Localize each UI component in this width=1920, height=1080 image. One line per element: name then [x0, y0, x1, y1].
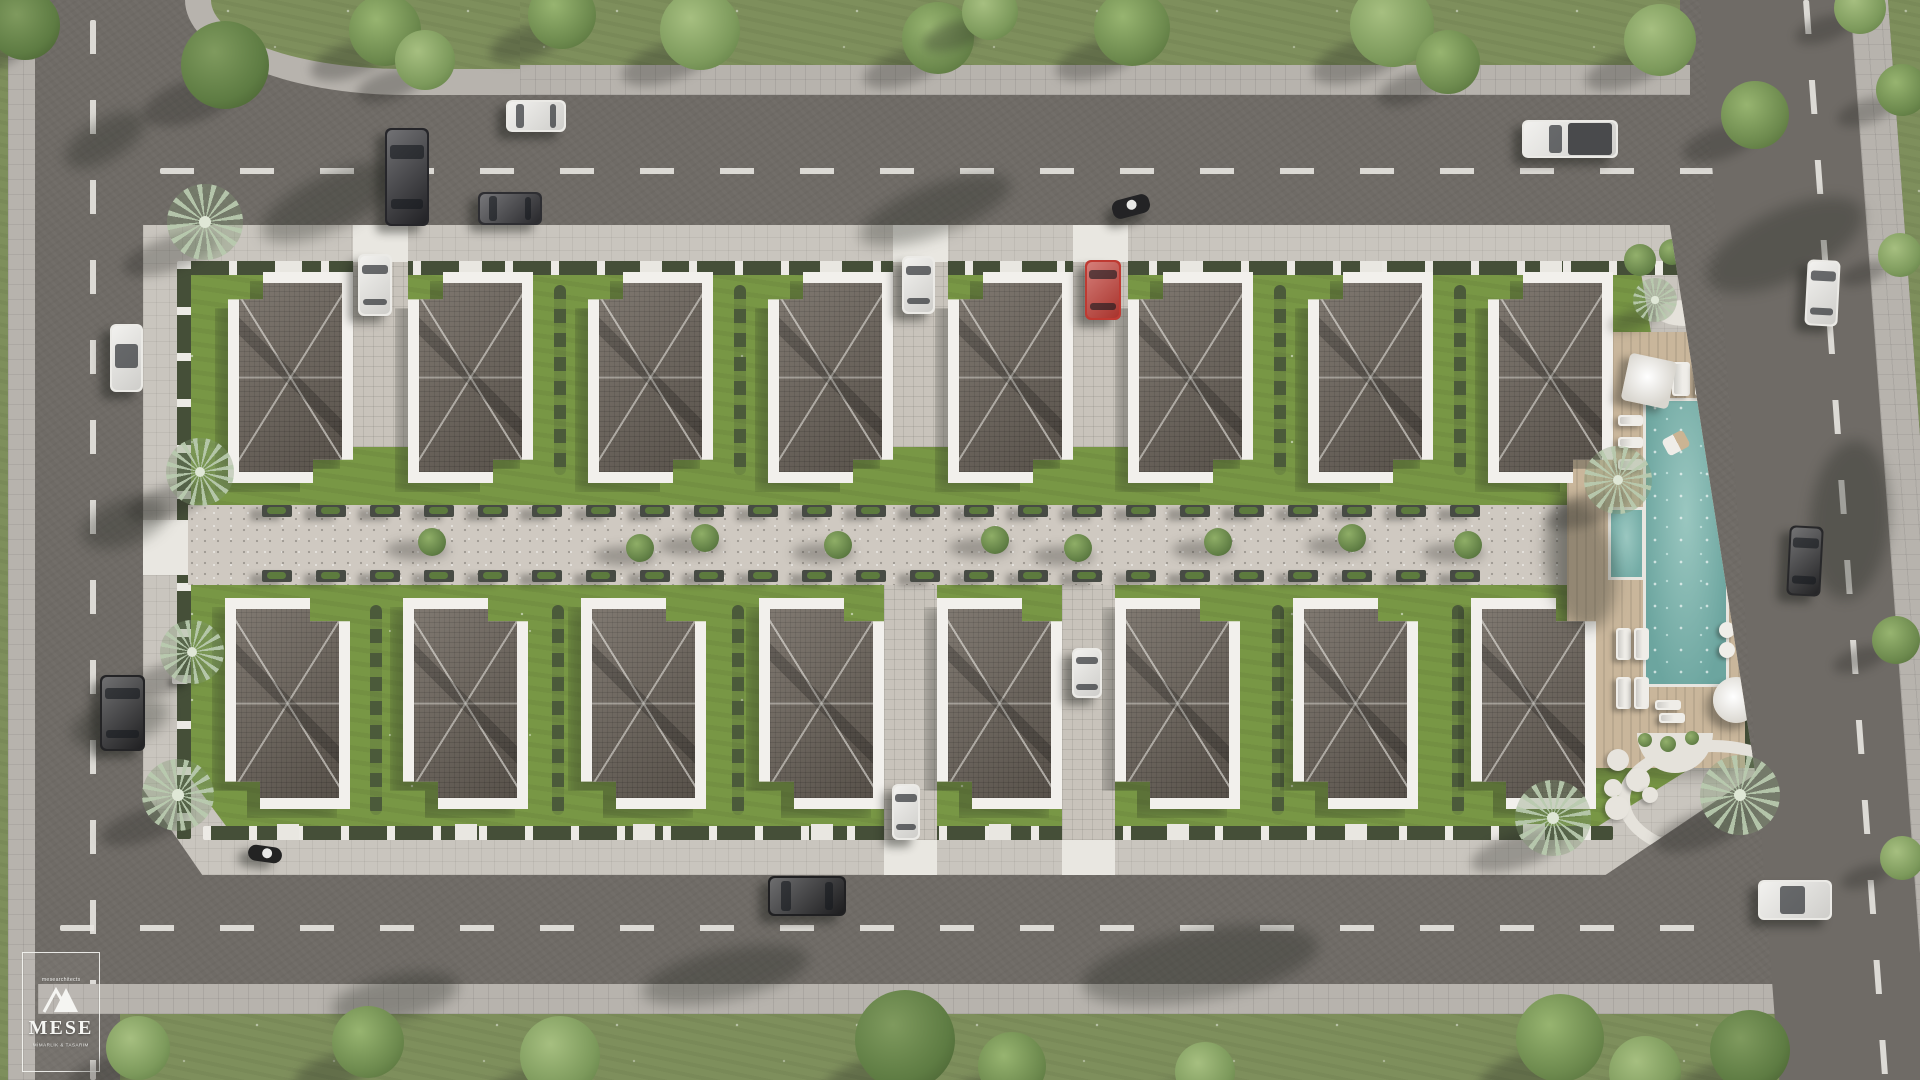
walkway-tree: [1338, 524, 1366, 552]
tree: [106, 1016, 170, 1080]
walkway-planter: [694, 570, 724, 582]
villa-entrance-porch: [275, 598, 299, 606]
villa: [588, 272, 713, 483]
villa-roof: [779, 283, 882, 472]
walkway-tree: [626, 534, 654, 562]
walkway-tree: [824, 531, 852, 559]
tree: [332, 1006, 404, 1078]
planter-shrub: [969, 507, 988, 514]
planter-shrub: [861, 507, 880, 514]
walkway-planter: [964, 570, 994, 582]
planter-shrub: [321, 507, 340, 514]
car-rear-window: [1792, 576, 1817, 585]
tree: [1416, 30, 1480, 94]
villa: [1128, 272, 1253, 483]
walkway-planter: [1126, 505, 1156, 517]
car-rear-window: [525, 197, 531, 221]
watermark-tagline: MİMARLIK & TASARIM: [33, 1043, 89, 1048]
walkway-planter: [532, 505, 562, 517]
walkway-planter: [1018, 570, 1048, 582]
walkway-planter: [424, 505, 454, 517]
mese-mountain-logo-icon: [41, 984, 81, 1014]
planter-shrub: [915, 507, 934, 514]
sun-lounger: [1618, 415, 1643, 426]
car-windshield: [1089, 270, 1116, 279]
walkway-tree: [1454, 531, 1482, 559]
garden-bush: [1659, 239, 1685, 265]
planter-shrub: [753, 572, 772, 579]
planter-shrub: [1131, 572, 1150, 579]
walkway-planter: [316, 505, 346, 517]
planter-shrub: [1077, 572, 1096, 579]
planter-shrub: [321, 572, 340, 579]
walkway-planter: [856, 505, 886, 517]
watermark-brand: MESE: [29, 1017, 94, 1040]
walkway-planter: [964, 505, 994, 517]
walkway-tree: [981, 526, 1009, 554]
villa-entrance-porch: [638, 475, 662, 483]
car: [1758, 880, 1832, 920]
villa-roof: [1126, 609, 1229, 798]
tree: [1624, 4, 1696, 76]
villa-entrance-porch: [987, 598, 1011, 606]
palm-tree: [142, 759, 214, 831]
walkway-planter: [802, 570, 832, 582]
planter-shrub: [483, 507, 502, 514]
tree: [181, 21, 269, 109]
palm-tree: [166, 438, 234, 506]
car-rear-window: [550, 104, 556, 127]
villa-roof: [414, 609, 517, 798]
garden-gate: [1167, 824, 1189, 840]
planter-shrub: [915, 572, 934, 579]
villa-entrance-porch: [1165, 598, 1189, 606]
palm-tree: [1633, 278, 1677, 322]
villa-entrance-porch: [1358, 475, 1382, 483]
car: [1085, 260, 1121, 320]
car: [768, 876, 846, 916]
car-rear-window: [1090, 303, 1116, 310]
palm-tree: [160, 620, 224, 684]
villa-roof: [419, 283, 522, 472]
walkway-planter: [532, 570, 562, 582]
sun-lounger: [1655, 700, 1681, 710]
walkway-planter: [316, 570, 346, 582]
villa: [581, 598, 706, 809]
walkway-planter: [640, 505, 670, 517]
planter-shrub: [483, 572, 502, 579]
car-windshield: [516, 104, 524, 128]
villa-roof: [770, 609, 873, 798]
planter-shrub: [807, 507, 826, 514]
palm-tree: [1700, 755, 1780, 835]
car-windshield: [1793, 537, 1819, 549]
palm-tree: [1584, 446, 1652, 514]
side-hedge: [552, 605, 564, 815]
walkway-planter: [748, 570, 778, 582]
car: [358, 254, 392, 316]
garden-gate: [811, 824, 833, 840]
car: [1110, 192, 1152, 220]
villa-entrance-porch: [809, 598, 833, 606]
stepping-stone: [1605, 796, 1629, 820]
car: [892, 784, 920, 840]
car-windshield: [781, 881, 791, 911]
left-sidewalk: [8, 0, 35, 1080]
car-windshield: [1549, 125, 1562, 154]
tree: [1516, 994, 1604, 1080]
garden-gate: [633, 824, 655, 840]
pool-umbrella: [1621, 353, 1678, 410]
planter-shrub: [429, 572, 448, 579]
planter-shrub: [969, 572, 988, 579]
sun-lounger: [1634, 628, 1649, 660]
sun-lounger: [1695, 362, 1713, 396]
walkway-planter: [424, 570, 454, 582]
car-windshield: [489, 196, 497, 221]
car: [902, 256, 935, 314]
bottom-road-lane-dashes: [60, 925, 1740, 931]
villa: [1293, 598, 1418, 809]
garden-bush: [1638, 733, 1652, 747]
walkway-planter: [1450, 505, 1480, 517]
walkway-planter: [1234, 505, 1264, 517]
walkway-planter: [586, 505, 616, 517]
walkway-planter: [586, 570, 616, 582]
walkway-planter: [370, 505, 400, 517]
villa-roof: [239, 283, 342, 472]
walkway-planter: [640, 570, 670, 582]
sun-lounger: [1616, 677, 1631, 709]
planter-shrub: [1185, 572, 1204, 579]
car-windshield: [1076, 657, 1099, 665]
planter-shrub: [645, 572, 664, 579]
villa-entrance-porch: [458, 475, 482, 483]
walkway-planter: [1180, 570, 1210, 582]
left-road-lane-dashes: [90, 20, 96, 1080]
planter-shrub: [1185, 507, 1204, 514]
planter-shrub: [591, 507, 610, 514]
side-hedge: [370, 605, 382, 815]
walkway-planter: [748, 505, 778, 517]
planter-shrub: [753, 507, 772, 514]
car-cabin: [115, 344, 139, 367]
garden-bush: [1660, 736, 1676, 752]
sun-lounger: [1634, 677, 1649, 709]
villa-entrance-porch: [1538, 475, 1562, 483]
villa-roof: [1304, 609, 1407, 798]
planter-shrub: [1023, 507, 1042, 514]
side-hedge: [554, 285, 566, 475]
garden-bush: [1685, 731, 1699, 745]
villa: [408, 272, 533, 483]
villa: [1308, 272, 1433, 483]
planter-shrub: [1347, 572, 1366, 579]
planter-shrub: [1077, 507, 1096, 514]
tree: [1878, 233, 1920, 277]
car: [478, 192, 542, 225]
villa-entrance-porch: [1178, 475, 1202, 483]
villa-entrance-porch: [998, 475, 1022, 483]
planter-shrub: [375, 572, 394, 579]
stepping-stone: [1642, 787, 1658, 803]
car: [1072, 648, 1102, 698]
tree: [0, 0, 60, 60]
sun-lounger: [1616, 628, 1631, 660]
garden-gate: [1345, 824, 1367, 840]
car-rear-window: [391, 199, 423, 210]
villa: [768, 272, 893, 483]
car-rear-window: [907, 298, 931, 304]
planter-shrub: [1239, 572, 1258, 579]
driveway-apron: [884, 840, 937, 875]
car-rear-window: [106, 730, 138, 738]
walkway-tree: [691, 524, 719, 552]
garden-gate: [277, 824, 299, 840]
walkway-planter: [478, 570, 508, 582]
walkway-planter: [1396, 505, 1426, 517]
walkway-planter: [1072, 570, 1102, 582]
walkway-planter: [478, 505, 508, 517]
walkway-planter: [856, 570, 886, 582]
car-windshield: [362, 265, 388, 274]
car-rear-window: [825, 882, 833, 911]
villa-roof: [592, 609, 695, 798]
tree: [1876, 64, 1920, 116]
tree: [1710, 1010, 1790, 1080]
car-rear-window: [1809, 307, 1833, 315]
side-hedge: [734, 285, 746, 475]
walkway-planter: [1342, 570, 1372, 582]
stepping-stone: [1604, 779, 1622, 797]
planter-shrub: [1293, 507, 1312, 514]
walkway-planter: [1180, 505, 1210, 517]
planter-shrub: [1455, 572, 1474, 579]
side-hedge: [1274, 285, 1286, 475]
villa: [228, 272, 353, 483]
driveway-apron: [1062, 840, 1115, 875]
planter-shrub: [267, 572, 286, 579]
car-rear-window: [896, 824, 916, 830]
car-windshield: [906, 266, 931, 275]
walkway-planter: [802, 505, 832, 517]
planter-shrub: [1455, 507, 1474, 514]
car: [385, 128, 429, 226]
villa-roof: [959, 283, 1062, 472]
car: [1522, 120, 1618, 158]
villa: [1471, 598, 1596, 809]
walkway-planter: [1288, 570, 1318, 582]
walkway-planter: [1450, 570, 1480, 582]
villa-entrance-porch: [1521, 598, 1545, 606]
side-hedge: [1454, 285, 1466, 475]
villa-roof: [948, 609, 1051, 798]
villa: [1488, 272, 1613, 483]
planter-shrub: [645, 507, 664, 514]
villa-roof: [1499, 283, 1602, 472]
car-cabin: [1780, 886, 1805, 915]
walkway-planter: [1234, 570, 1264, 582]
walkway-planter: [1288, 505, 1318, 517]
driveway-apron: [1073, 225, 1128, 262]
car-rear-window: [363, 299, 387, 306]
tree: [395, 30, 455, 90]
car-rear-window: [1076, 684, 1098, 690]
garden-gate: [455, 824, 477, 840]
tree: [1880, 836, 1920, 880]
planter-shrub: [699, 507, 718, 514]
planter-shrub: [1023, 572, 1042, 579]
tree: [1872, 616, 1920, 664]
watermark-header: mesearchitects: [42, 977, 81, 983]
villa-roof: [236, 609, 339, 798]
garden-bush: [1624, 244, 1656, 276]
villa-roof: [599, 283, 702, 472]
left-grass-verge: [0, 0, 8, 1080]
side-hedge: [732, 605, 744, 815]
car: [506, 100, 566, 132]
sun-lounger: [1659, 713, 1685, 723]
pool-table: [1719, 622, 1735, 638]
moto-rider-helmet: [261, 848, 272, 859]
aerial-site-render: mesearchitects MESE MİMARLIK & TASARIM: [0, 0, 1920, 1080]
villa: [937, 598, 1062, 809]
pool-table: [1719, 642, 1735, 658]
walkway-planter: [370, 570, 400, 582]
walkway-tree: [1064, 534, 1092, 562]
walkway-tree: [1204, 528, 1232, 556]
planter-shrub: [267, 507, 286, 514]
planter-shrub: [699, 572, 718, 579]
pickup-bed: [1568, 123, 1612, 155]
planter-shrub: [375, 507, 394, 514]
planter-shrub: [1401, 507, 1420, 514]
planter-shrub: [807, 572, 826, 579]
planter-shrub: [429, 507, 448, 514]
car: [100, 675, 145, 751]
villa-entrance-porch: [278, 475, 302, 483]
villa-entrance-porch: [1343, 598, 1367, 606]
walkway-planter: [910, 570, 940, 582]
planter-shrub: [537, 507, 556, 514]
walkway-planter: [262, 505, 292, 517]
cast-shadow: [56, 100, 154, 180]
walkway-planter: [262, 570, 292, 582]
villa-roof: [1482, 609, 1585, 798]
walkway-planter: [910, 505, 940, 517]
car: [1804, 259, 1840, 327]
walkway-planter: [1342, 505, 1372, 517]
villa-roof: [1139, 283, 1242, 472]
moto-rider-helmet: [1126, 198, 1138, 210]
car-windshield: [1811, 271, 1837, 282]
car: [110, 324, 143, 392]
planter-shrub: [1293, 572, 1312, 579]
walkway-planter: [694, 505, 724, 517]
villa-entrance-porch: [453, 598, 477, 606]
walkway-planter: [1126, 570, 1156, 582]
villa-entrance-porch: [631, 598, 655, 606]
garden-gate: [989, 824, 1011, 840]
villa-roof: [1319, 283, 1422, 472]
watermark: mesearchitects MESE MİMARLIK & TASARIM: [22, 952, 100, 1072]
villa: [225, 598, 350, 809]
car-windshield: [390, 145, 423, 160]
walkway-planter: [1018, 505, 1048, 517]
walkway-planter: [1072, 505, 1102, 517]
walkway-planter: [1396, 570, 1426, 582]
car: [1786, 525, 1824, 597]
palm-tree: [167, 184, 243, 260]
villa-entrance-porch: [818, 475, 842, 483]
villa: [403, 598, 528, 809]
planter-shrub: [861, 572, 880, 579]
car-windshield: [895, 794, 916, 802]
planter-shrub: [591, 572, 610, 579]
planter-shrub: [1131, 507, 1150, 514]
villa: [948, 272, 1073, 483]
walkway-tree: [418, 528, 446, 556]
planter-shrub: [1347, 507, 1366, 514]
planter-shrub: [1239, 507, 1258, 514]
tree: [1721, 81, 1789, 149]
garden-bush: [1688, 280, 1712, 304]
stepping-stone: [1607, 749, 1629, 771]
planter-shrub: [1401, 572, 1420, 579]
palm-tree: [1515, 780, 1591, 856]
car-windshield: [105, 688, 139, 699]
planter-shrub: [537, 572, 556, 579]
villa: [1115, 598, 1240, 809]
villa: [759, 598, 884, 809]
tree: [855, 990, 955, 1080]
